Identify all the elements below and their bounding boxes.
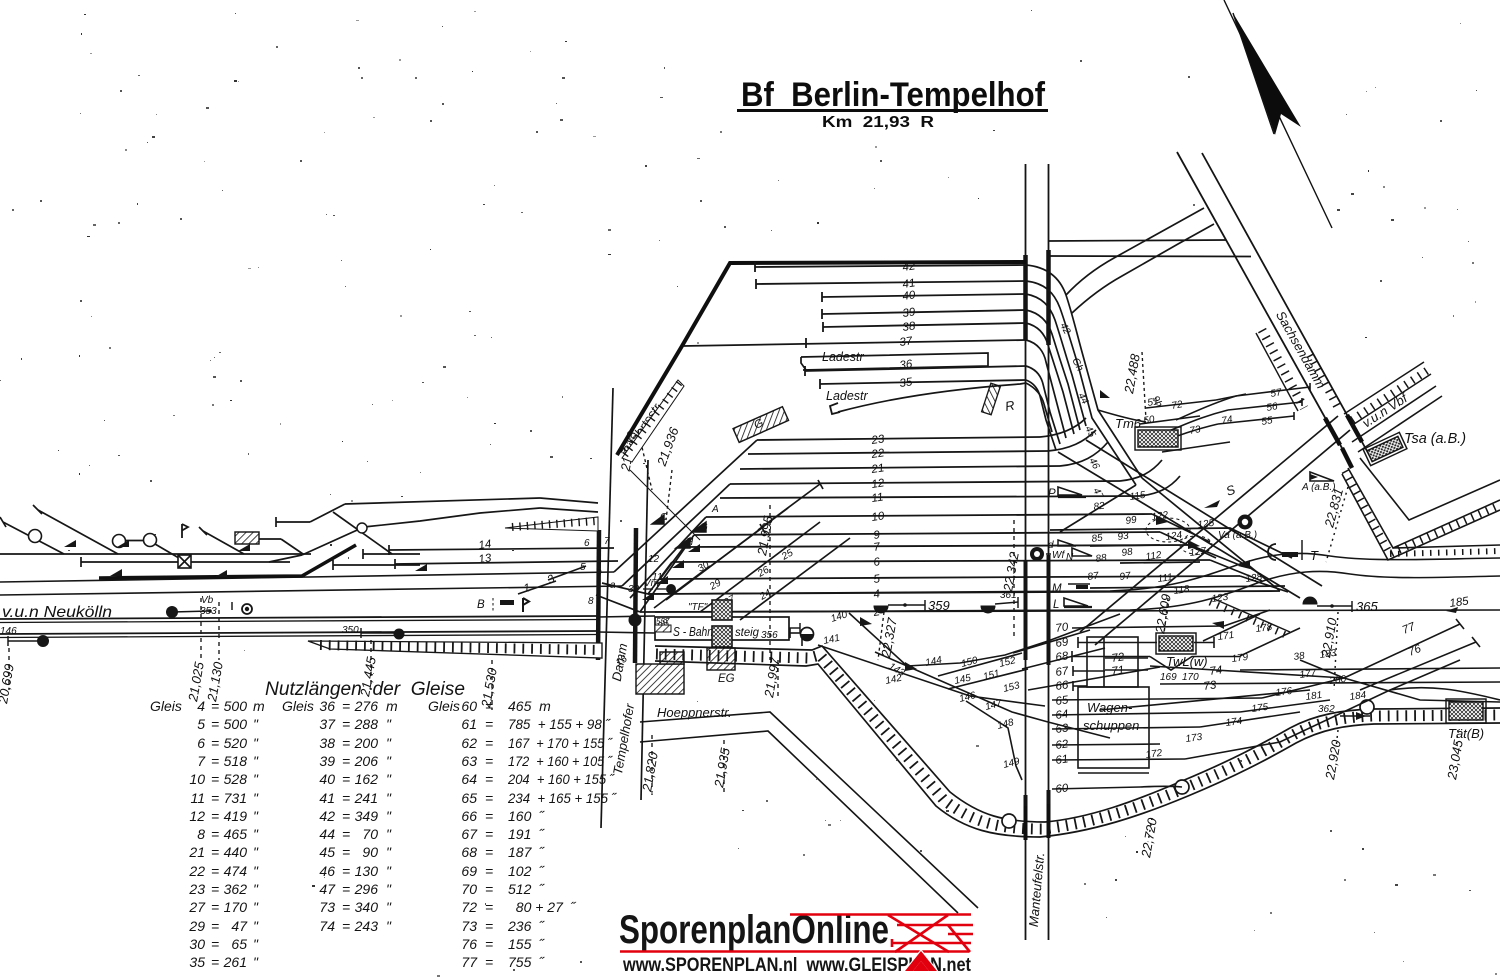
svg-text:62: 62 [1055,738,1070,752]
svg-text:": " [386,881,392,897]
svg-text:21: 21 [870,462,885,476]
svg-text:Tempelhofer: Tempelhofer [610,702,637,776]
svg-text:206: 206 [354,753,379,769]
svg-text:S: S [1224,482,1238,499]
svg-text:87: 87 [1087,570,1100,583]
svg-text:=: = [211,735,219,751]
svg-text:=: = [211,753,219,769]
svg-text:M: M [1052,583,1062,595]
svg-text:": " [386,844,392,860]
svg-text:243: 243 [354,918,379,934]
svg-text:528: 528 [224,771,248,787]
svg-text:22,609: 22,609 [1152,593,1174,636]
svg-text:440: 440 [224,844,248,860]
svg-text:10: 10 [189,771,205,787]
svg-text:47: 47 [1090,486,1105,501]
svg-text:Vb: Vb [201,595,214,606]
svg-text:=: = [485,899,493,915]
svg-text:40: 40 [902,289,917,303]
svg-text:": " [386,808,392,824]
svg-text:Tsa (a.B.): Tsa (a.B.) [1404,430,1466,447]
svg-text:10: 10 [871,510,886,524]
svg-text:69: 69 [1055,636,1070,650]
svg-text:27: 27 [188,899,206,915]
svg-text:": " [386,716,392,732]
svg-text:153: 153 [1002,680,1021,695]
svg-text:Nutzlängen der Gleise: Nutzlängen der Gleise [265,679,465,700]
svg-text:47: 47 [231,918,248,934]
svg-text:Manteufelstr.: Manteufelstr. [1026,852,1047,928]
svg-text:68: 68 [461,844,477,860]
svg-text:1: 1 [523,582,531,595]
svg-text:12: 12 [871,477,886,491]
svg-text:64: 64 [1055,708,1069,722]
svg-text:90: 90 [362,844,378,860]
svg-text:150: 150 [960,655,979,670]
svg-text:=: = [342,899,350,915]
svg-text:=: = [342,790,350,806]
svg-text:465: 465 [224,826,248,842]
svg-text:47: 47 [319,881,336,897]
svg-text:=: = [485,863,493,879]
svg-text:Gleis: Gleis [150,698,182,714]
svg-text:61: 61 [461,716,477,732]
svg-text:=: = [211,826,219,842]
svg-text:500: 500 [224,716,248,732]
svg-text:173: 173 [1185,732,1203,745]
svg-text:148: 148 [996,717,1015,732]
svg-text:76: 76 [1407,643,1424,659]
svg-text:R: R [1004,398,1016,414]
svg-text:22: 22 [188,863,205,879]
svg-text:37: 37 [899,335,914,349]
svg-text:73: 73 [461,918,477,934]
svg-text:179: 179 [1231,652,1249,665]
svg-text:37: 37 [319,716,336,732]
svg-text:=: = [342,735,350,751]
svg-text:EG: EG [718,673,735,685]
svg-text:6: 6 [197,735,205,751]
svg-text:": " [253,918,259,934]
svg-text:149: 149 [1002,756,1021,771]
svg-text:d: d [1048,540,1054,551]
svg-text:P: P [1048,488,1056,500]
svg-text:39: 39 [902,306,917,320]
svg-text:362: 362 [224,881,248,897]
svg-text:": " [253,936,259,952]
svg-text:11: 11 [190,790,205,806]
svg-text:v.u.n Neukölln: v.u.n Neukölln [2,604,112,621]
svg-text:9: 9 [596,568,602,579]
svg-text:74: 74 [319,918,335,934]
svg-text:155 ˝: 155 ˝ [508,936,545,952]
svg-text:L: L [1053,599,1059,611]
svg-text:22: 22 [870,447,886,461]
svg-text:S - Bahn: S - Bahn [673,624,713,639]
svg-text:=: = [485,954,493,970]
svg-text:204 + 160 + 155 ˝: 204 + 160 + 155 ˝ [507,771,615,787]
svg-text:=: = [485,735,493,751]
svg-text:=: = [485,808,493,824]
svg-text:9: 9 [873,529,882,542]
svg-text:=: = [342,698,350,714]
svg-text:419: 419 [224,808,248,824]
svg-text:35: 35 [189,954,205,970]
svg-text:38: 38 [319,735,335,751]
svg-text:21,935: 21,935 [711,746,733,790]
svg-text:39: 39 [319,753,335,769]
svg-text:178: 178 [1255,622,1273,635]
svg-text:=: = [485,716,493,732]
svg-text:Bf Berlin-Tempelhof: Bf Berlin-Tempelhof [741,76,1046,114]
svg-text:88: 88 [1095,552,1108,565]
svg-text:359: 359 [928,598,950,613]
svg-text:64: 64 [461,771,477,787]
svg-text:22,342: 22,342 [1000,550,1022,594]
svg-text:50: 50 [1143,414,1156,427]
svg-text:40: 40 [319,771,335,787]
svg-text:144: 144 [924,655,943,669]
svg-text:21,995: 21,995 [754,514,776,558]
svg-text:Va (a.B.): Va (a.B.) [1218,530,1257,541]
svg-text:T: T [1310,548,1319,563]
svg-text:=: = [211,881,219,897]
svg-text:13: 13 [478,552,493,566]
svg-text:": " [253,808,259,824]
svg-text:167 + 170 + 155 ˝: 167 + 170 + 155 ˝ [508,735,613,751]
svg-text:24: 24 [757,587,773,603]
svg-text:76: 76 [461,936,477,952]
svg-text:55: 55 [1261,415,1274,428]
svg-text:": " [253,735,259,751]
svg-text:21,025: 21,025 [185,660,207,704]
svg-text:512 ˝: 512 ˝ [508,881,545,897]
svg-text:74: 74 [1221,414,1234,427]
svg-text:296: 296 [354,881,379,897]
svg-text:350: 350 [342,625,359,636]
svg-text:20,699: 20,699 [0,663,17,706]
svg-text:": " [253,753,259,769]
svg-text:=: = [211,899,219,915]
svg-text:4: 4 [873,588,881,601]
svg-text:171: 171 [1217,630,1235,643]
svg-text:65: 65 [231,936,247,952]
svg-text:": " [386,753,392,769]
svg-text:38: 38 [902,320,917,334]
svg-text:118: 118 [1173,584,1191,597]
svg-text:": " [253,771,259,787]
svg-text:46: 46 [319,863,335,879]
svg-text:176: 176 [1275,686,1293,699]
svg-text:22,920: 22,920 [1322,738,1344,782]
svg-text:": " [386,863,392,879]
svg-text:42: 42 [902,260,917,274]
svg-text:=: = [211,698,219,714]
svg-text:=: = [485,936,493,952]
svg-text:23: 23 [870,433,886,447]
svg-text:785 + 155 + 98 ˝: 785 + 155 + 98 ˝ [508,716,611,732]
svg-text:": " [253,844,259,860]
svg-text:m: m [253,698,265,714]
svg-text:m: m [386,698,398,714]
svg-text:23: 23 [188,881,205,897]
svg-text:70: 70 [461,881,477,897]
svg-text:518: 518 [224,753,248,769]
svg-text:356: 356 [761,630,778,641]
svg-text:=: = [342,716,350,732]
svg-text:12: 12 [648,554,660,565]
svg-text:Gleis: Gleis [428,698,460,714]
svg-text:"TF": "TF" [688,602,708,613]
svg-text:276: 276 [354,698,379,714]
svg-text:97: 97 [1119,570,1132,583]
svg-text:62: 62 [461,735,477,751]
svg-text:36: 36 [899,358,914,372]
svg-text:465 m: 465 m [508,698,551,714]
svg-text:353: 353 [200,606,217,617]
svg-text:5: 5 [580,562,586,573]
svg-text:=: = [342,826,350,842]
svg-text:65: 65 [461,790,477,806]
svg-text:183: 183 [1319,648,1337,661]
svg-text:=: = [211,844,219,860]
svg-text:66: 66 [461,808,477,824]
svg-text:280: 280 [1328,674,1347,687]
svg-text:340: 340 [355,899,379,915]
svg-text:362: 362 [1318,704,1335,715]
svg-text:65: 65 [1055,694,1070,708]
svg-text:22,720: 22,720 [1138,816,1160,860]
svg-text:72: 72 [1171,399,1184,412]
svg-text:170: 170 [1182,672,1199,683]
svg-text:8: 8 [197,826,205,842]
svg-text:365: 365 [1356,599,1378,614]
svg-text:72: 72 [461,899,477,915]
svg-text:261: 261 [223,954,247,970]
svg-text:=: = [211,808,219,824]
svg-text:=: = [485,918,493,934]
svg-text:177: 177 [1299,668,1317,681]
svg-text:Ladestr: Ladestr [822,350,865,364]
svg-text:288: 288 [354,716,379,732]
svg-text:": " [253,826,259,842]
svg-text:236 ˝: 236 ˝ [507,918,545,934]
svg-text:187 ˝: 187 ˝ [508,844,545,860]
svg-text:45: 45 [319,844,335,860]
svg-text:": " [386,790,392,806]
svg-text:=: = [485,771,493,787]
svg-text:=: = [211,863,219,879]
svg-text:=: = [342,771,350,787]
svg-text:=: = [485,698,493,714]
svg-text:234 + 165 + 155 ˝: 234 + 165 + 155 ˝ [507,790,617,806]
svg-text:99: 99 [1125,514,1138,527]
svg-text:77: 77 [1401,621,1418,637]
svg-text:500: 500 [224,698,248,714]
svg-text:30: 30 [189,936,205,952]
svg-text:474: 474 [224,863,248,879]
svg-text:Gleis: Gleis [282,698,314,714]
svg-text:32: 32 [628,584,640,595]
svg-text:160 ˝: 160 ˝ [508,808,545,824]
svg-text:4: 4 [197,698,205,714]
svg-text:169: 169 [1160,672,1177,683]
svg-text:73: 73 [1203,679,1218,693]
svg-text:=: = [485,844,493,860]
svg-text:6: 6 [873,556,882,569]
svg-text:29: 29 [188,918,205,934]
svg-text:7: 7 [873,541,882,554]
svg-text:73: 73 [319,899,335,915]
svg-text:=: = [211,918,219,934]
svg-text:67: 67 [1055,665,1070,679]
svg-text:=: = [342,863,350,879]
svg-text:Tm6: Tm6 [1115,416,1142,431]
svg-text:146: 146 [0,626,17,637]
svg-text:": " [253,899,259,915]
svg-text:151: 151 [982,668,1001,683]
svg-text:=: = [211,954,219,970]
svg-text:Hoeppnerstr.: Hoeppnerstr. [657,705,732,720]
svg-text:A: A [711,504,719,515]
svg-text:=: = [342,918,350,934]
svg-text:162: 162 [355,771,379,787]
svg-text:67: 67 [461,826,478,842]
svg-text:23,045: 23,045 [1444,738,1466,782]
svg-text:Wf: Wf [1052,550,1065,561]
svg-text:145: 145 [953,673,972,687]
svg-text:": " [253,863,259,879]
svg-text:68: 68 [1055,650,1070,664]
svg-text:60: 60 [461,698,477,714]
svg-text:5: 5 [873,573,882,586]
svg-text:21,130: 21,130 [204,660,226,704]
svg-text:57: 57 [1270,387,1283,400]
svg-text:7: 7 [197,753,206,769]
svg-text:82: 82 [1093,500,1106,513]
svg-text:60: 60 [1055,782,1070,796]
svg-text:172 + 160 + 105 ˝: 172 + 160 + 105 ˝ [508,753,613,769]
svg-text:36: 36 [319,698,335,714]
svg-text:111: 111 [1157,572,1174,585]
svg-text:63: 63 [1055,722,1070,736]
svg-text:=: = [211,936,219,952]
svg-text:": " [253,881,259,897]
svg-text:61: 61 [1055,753,1069,767]
svg-text:7: 7 [604,536,610,547]
svg-text:38: 38 [1293,650,1306,663]
svg-text:44: 44 [319,826,335,842]
svg-text:": " [386,918,392,934]
svg-text:63: 63 [461,753,477,769]
svg-text:B: B [477,599,485,611]
svg-text:241: 241 [354,790,378,806]
svg-text:41: 41 [319,790,335,806]
svg-text:115: 115 [1129,490,1147,503]
svg-text:130: 130 [355,863,379,879]
svg-text:731: 731 [224,790,247,806]
svg-text:98: 98 [1121,546,1134,559]
svg-text:steig: steig [735,625,759,639]
svg-text:42: 42 [319,808,335,824]
svg-text:Km 21,93 R: Km 21,93 R [822,114,935,131]
svg-text:66: 66 [1055,679,1070,693]
svg-text:200: 200 [354,735,379,751]
svg-text:schuppen: schuppen [1083,718,1139,733]
svg-text:8: 8 [588,596,594,607]
svg-text:": " [386,899,392,915]
svg-text:21,997: 21,997 [761,656,783,700]
svg-text:=: = [485,881,493,897]
svg-text:=: = [485,826,493,842]
svg-text:70: 70 [1055,621,1070,635]
svg-text:=: = [485,753,493,769]
svg-text:77: 77 [461,954,478,970]
svg-text:22,488: 22,488 [1121,352,1143,396]
svg-text:102 ˝: 102 ˝ [508,863,545,879]
svg-text:=: = [342,753,350,769]
svg-text:72: 72 [1111,651,1126,665]
svg-text:80 + 27 ˝: 80 + 27 ˝ [508,899,577,915]
svg-text:=: = [342,881,350,897]
svg-text:181: 181 [1305,690,1323,703]
svg-text:11: 11 [871,491,885,505]
svg-text:152: 152 [998,655,1017,670]
svg-text:349: 349 [355,808,379,824]
svg-text:": " [386,826,392,842]
svg-text:": " [253,790,259,806]
svg-text:85: 85 [1091,532,1104,545]
svg-text:12: 12 [189,808,205,824]
svg-text:170: 170 [224,899,248,915]
svg-text:520: 520 [224,735,248,751]
svg-text:": " [253,716,259,732]
svg-text:361: 361 [1000,590,1017,601]
svg-text:=: = [211,716,219,732]
svg-text:56: 56 [1266,401,1279,414]
svg-text:112: 112 [1145,550,1163,563]
svg-text:=: = [485,790,493,806]
svg-text:=: = [211,790,219,806]
svg-text:71: 71 [1111,664,1125,678]
svg-text:": " [386,771,392,787]
svg-text:29: 29 [707,577,723,593]
svg-text:": " [386,735,392,751]
svg-text:5: 5 [197,716,205,732]
svg-text:21,936: 21,936 [654,424,682,468]
svg-text:Tät(B): Tät(B) [1448,726,1484,741]
svg-text:": " [253,954,259,970]
svg-text:185: 185 [1449,595,1470,610]
svg-text:=: = [342,844,350,860]
svg-text:141: 141 [822,633,841,647]
svg-text:73: 73 [1189,424,1202,437]
svg-text:191 ˝: 191 ˝ [508,826,545,842]
svg-text:Ladestr: Ladestr [826,389,869,403]
svg-text:174: 174 [1225,716,1243,729]
svg-text:=: = [342,808,350,824]
svg-text:69: 69 [461,863,477,879]
svg-text:N: N [1066,552,1074,563]
svg-text:21: 21 [188,844,205,860]
svg-text:6: 6 [584,538,590,549]
svg-text:=: = [211,771,219,787]
svg-text:755 ˝: 755 ˝ [508,954,545,970]
svg-text:93: 93 [1117,530,1130,543]
svg-text:175: 175 [1251,702,1269,715]
svg-text:35: 35 [899,376,914,390]
svg-text:22,327: 22,327 [878,616,900,660]
